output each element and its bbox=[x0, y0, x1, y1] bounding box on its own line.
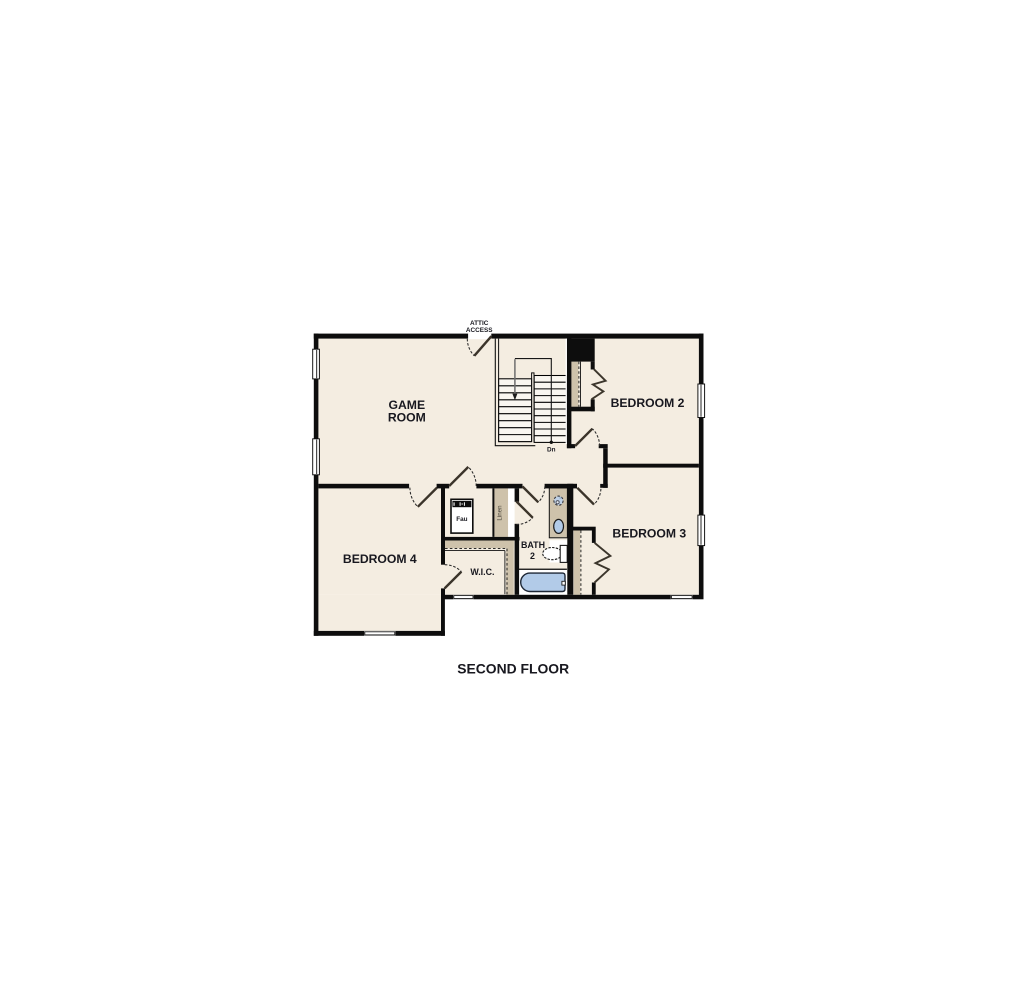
svg-text:W.I.C.: W.I.C. bbox=[470, 567, 494, 577]
svg-text:Fau: Fau bbox=[456, 516, 467, 523]
svg-text:Dn: Dn bbox=[547, 446, 556, 453]
svg-text:BATH: BATH bbox=[521, 540, 545, 550]
svg-text:BEDROOM 4: BEDROOM 4 bbox=[343, 552, 417, 566]
svg-text:ATTIC: ATTIC bbox=[470, 320, 489, 327]
svg-text:ACCESS: ACCESS bbox=[466, 327, 493, 334]
svg-text:Linen: Linen bbox=[497, 505, 504, 521]
svg-text:ROOM: ROOM bbox=[388, 411, 426, 425]
svg-text:2: 2 bbox=[530, 551, 535, 561]
svg-text:SECOND FLOOR: SECOND FLOOR bbox=[457, 661, 569, 677]
svg-text:BEDROOM 3: BEDROOM 3 bbox=[612, 526, 686, 540]
svg-text:BEDROOM 2: BEDROOM 2 bbox=[611, 396, 685, 410]
